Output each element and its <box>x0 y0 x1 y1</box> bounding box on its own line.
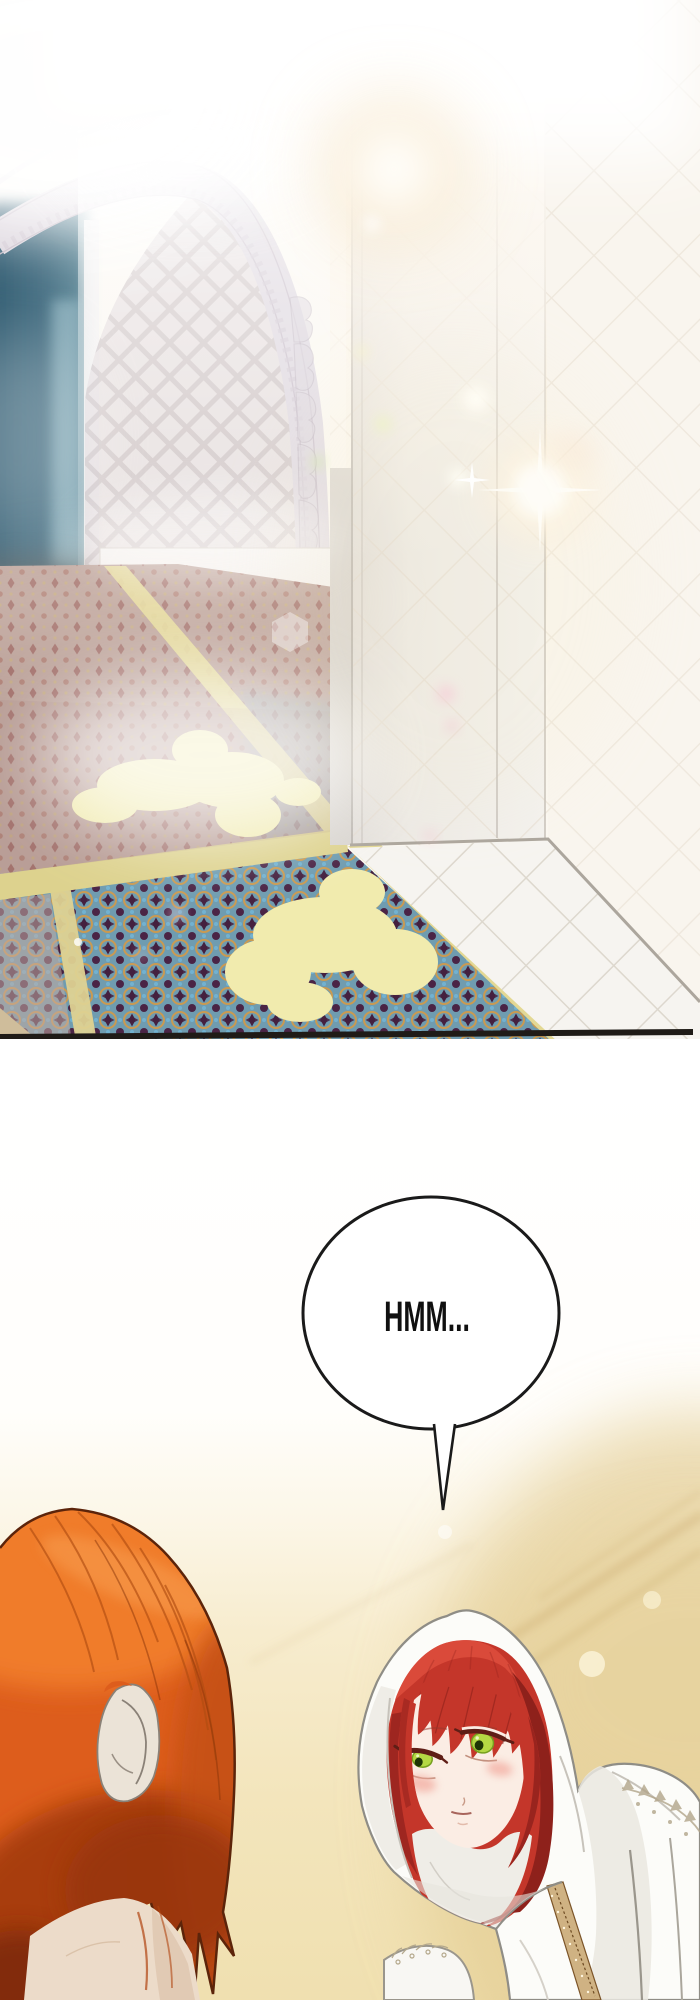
svg-text:HMM...: HMM... <box>384 1293 470 1341</box>
